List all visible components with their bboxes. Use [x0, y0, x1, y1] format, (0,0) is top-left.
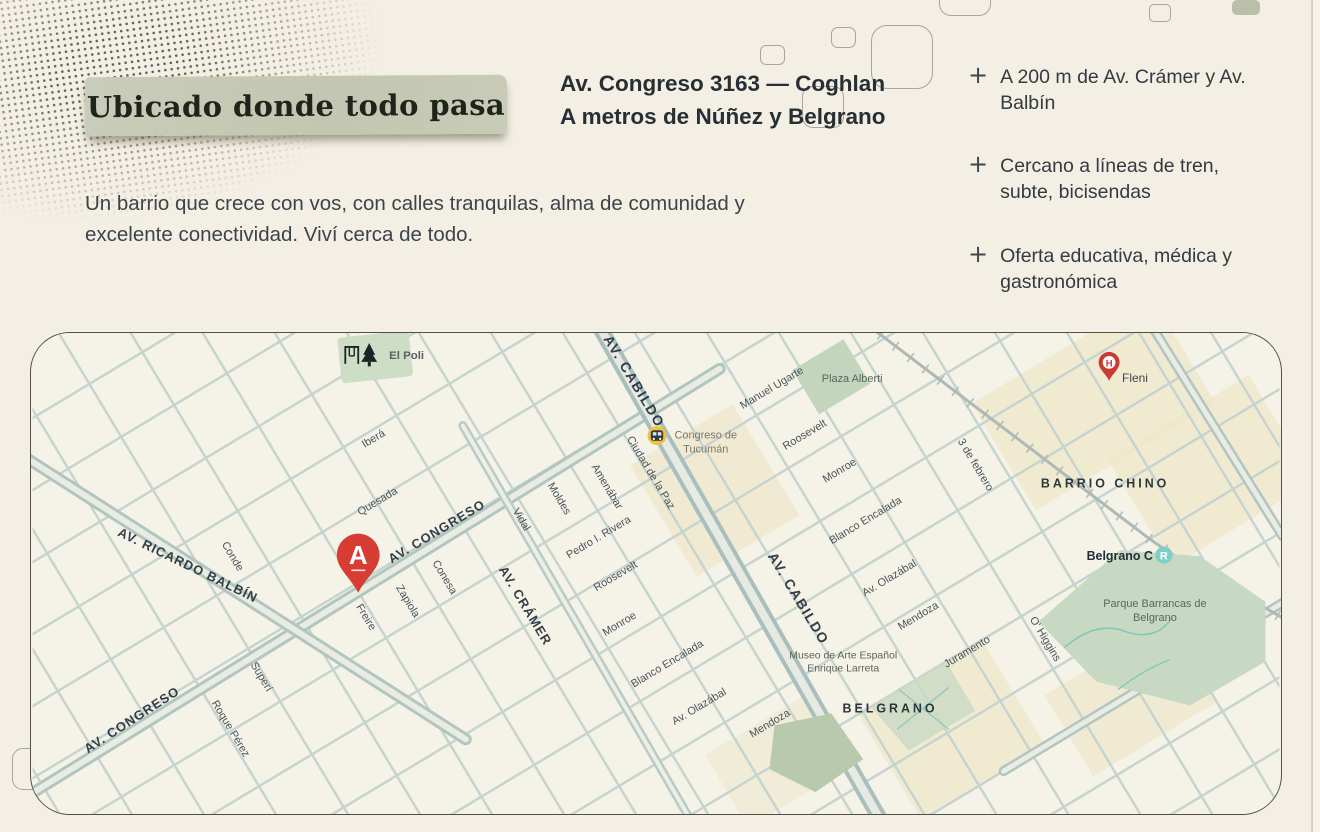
- deco-square: [760, 45, 785, 65]
- poi-label-museo-2: Enrique Larreta: [807, 664, 879, 675]
- train-station-icon: R: [1155, 547, 1172, 564]
- poi-label-parque-barrancas-1: Parque Barrancas de: [1103, 598, 1206, 610]
- hospital-pin-letter: H: [1106, 358, 1113, 369]
- plus-icon: +: [968, 62, 988, 116]
- area-label-belgrano: BELGRANO: [842, 701, 937, 715]
- deco-square-filled: [1232, 0, 1260, 15]
- section-badge: Ubicado donde todo pasa: [85, 75, 507, 137]
- poi-label-museo-1: Museo de Arte Español: [789, 651, 897, 662]
- highlight-text: A 200 m de Av. Crámer y Av. Balbín: [1000, 62, 1260, 116]
- poi-label-congreso-tucuman-1: Congreso de: [674, 430, 737, 442]
- highlight-item: + A 200 m de Av. Crámer y Av. Balbín: [968, 62, 1260, 116]
- poi-label-parque-barrancas-2: Belgrano: [1133, 612, 1177, 624]
- section-badge-label: Ubicado donde todo pasa: [87, 87, 505, 124]
- poi-label-belgrano-c: Belgrano C: [1087, 549, 1153, 563]
- subway-station-icon: [648, 426, 667, 445]
- plus-icon: +: [968, 241, 988, 295]
- location-map[interactable]: Iberá Quesada Pedro I. Rivera Roosevelt …: [30, 332, 1282, 815]
- deco-square: [939, 0, 991, 16]
- page-edge-strip: [1313, 0, 1320, 832]
- poi-label-el-poli: El Poli: [389, 350, 424, 362]
- map-canvas: Iberá Quesada Pedro I. Rivera Roosevelt …: [31, 333, 1281, 814]
- page-edge-line: [1311, 0, 1313, 832]
- highlights-list: + A 200 m de Av. Crámer y Av. Balbín + C…: [968, 62, 1260, 330]
- title-line-2: A metros de Núñez y Belgrano: [560, 101, 885, 134]
- property-marker-letter: A: [349, 542, 368, 570]
- deco-square: [831, 27, 856, 48]
- highlight-item: + Cercano a líneas de tren, subte, bicis…: [968, 151, 1260, 205]
- deco-square: [1149, 4, 1171, 22]
- intro-paragraph: Un barrio que crece con vos, con calles …: [85, 188, 790, 251]
- poi-label-fleni: Fleni: [1122, 371, 1148, 385]
- halftone-dots-decoration: [0, 0, 605, 363]
- title-line-1: Av. Congreso 3163 — Coghlan: [560, 68, 885, 101]
- train-station-letter: R: [1160, 551, 1168, 563]
- page-title: Av. Congreso 3163 — Coghlan A metros de …: [560, 68, 885, 133]
- area-label-barrio-chino: BARRIO CHINO: [1041, 476, 1169, 490]
- highlight-text: Oferta educativa, médica y gastronómica: [1000, 241, 1260, 295]
- poi-label-plaza-alberti: Plaza Alberti: [822, 373, 883, 385]
- poi-label-congreso-tucuman-2: Tucumán: [683, 444, 728, 456]
- highlight-item: + Oferta educativa, médica y gastronómic…: [968, 241, 1260, 295]
- highlight-text: Cercano a líneas de tren, subte, bicisen…: [1000, 151, 1260, 205]
- plus-icon: +: [968, 151, 988, 205]
